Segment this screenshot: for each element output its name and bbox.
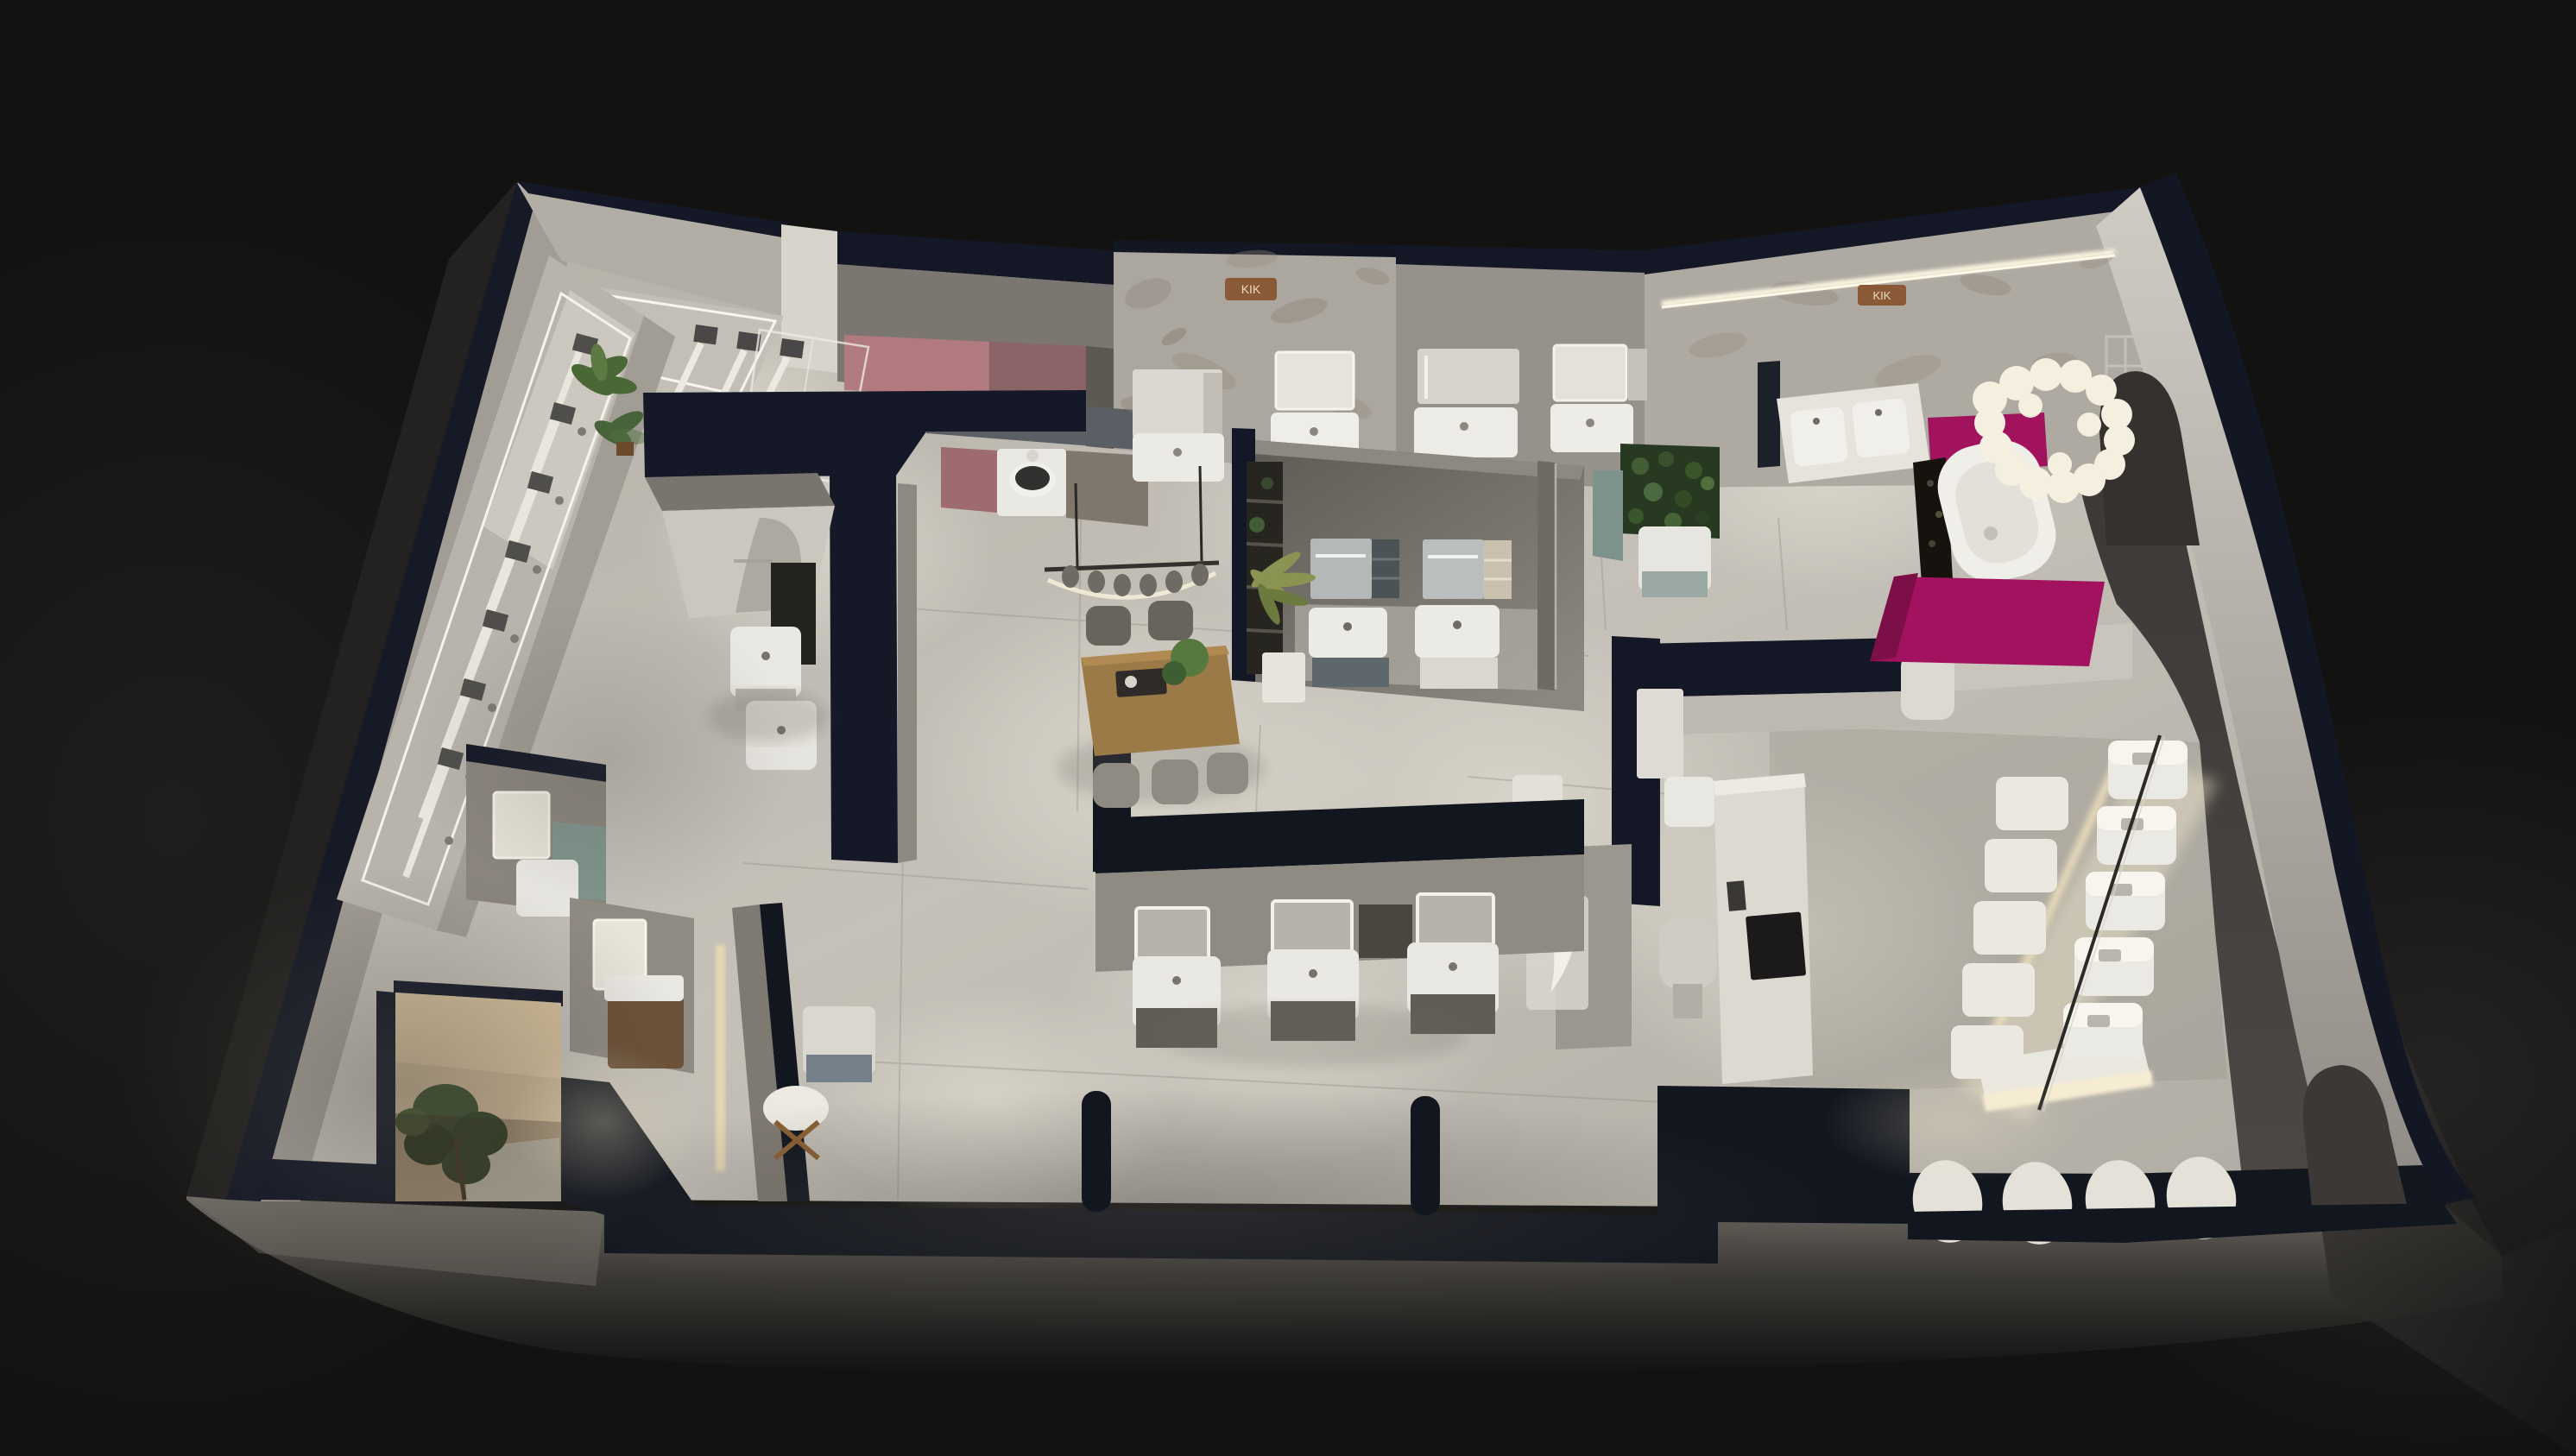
svg-text:KIK: KIK (1873, 289, 1891, 302)
svg-text:KIK: KIK (1241, 282, 1261, 296)
